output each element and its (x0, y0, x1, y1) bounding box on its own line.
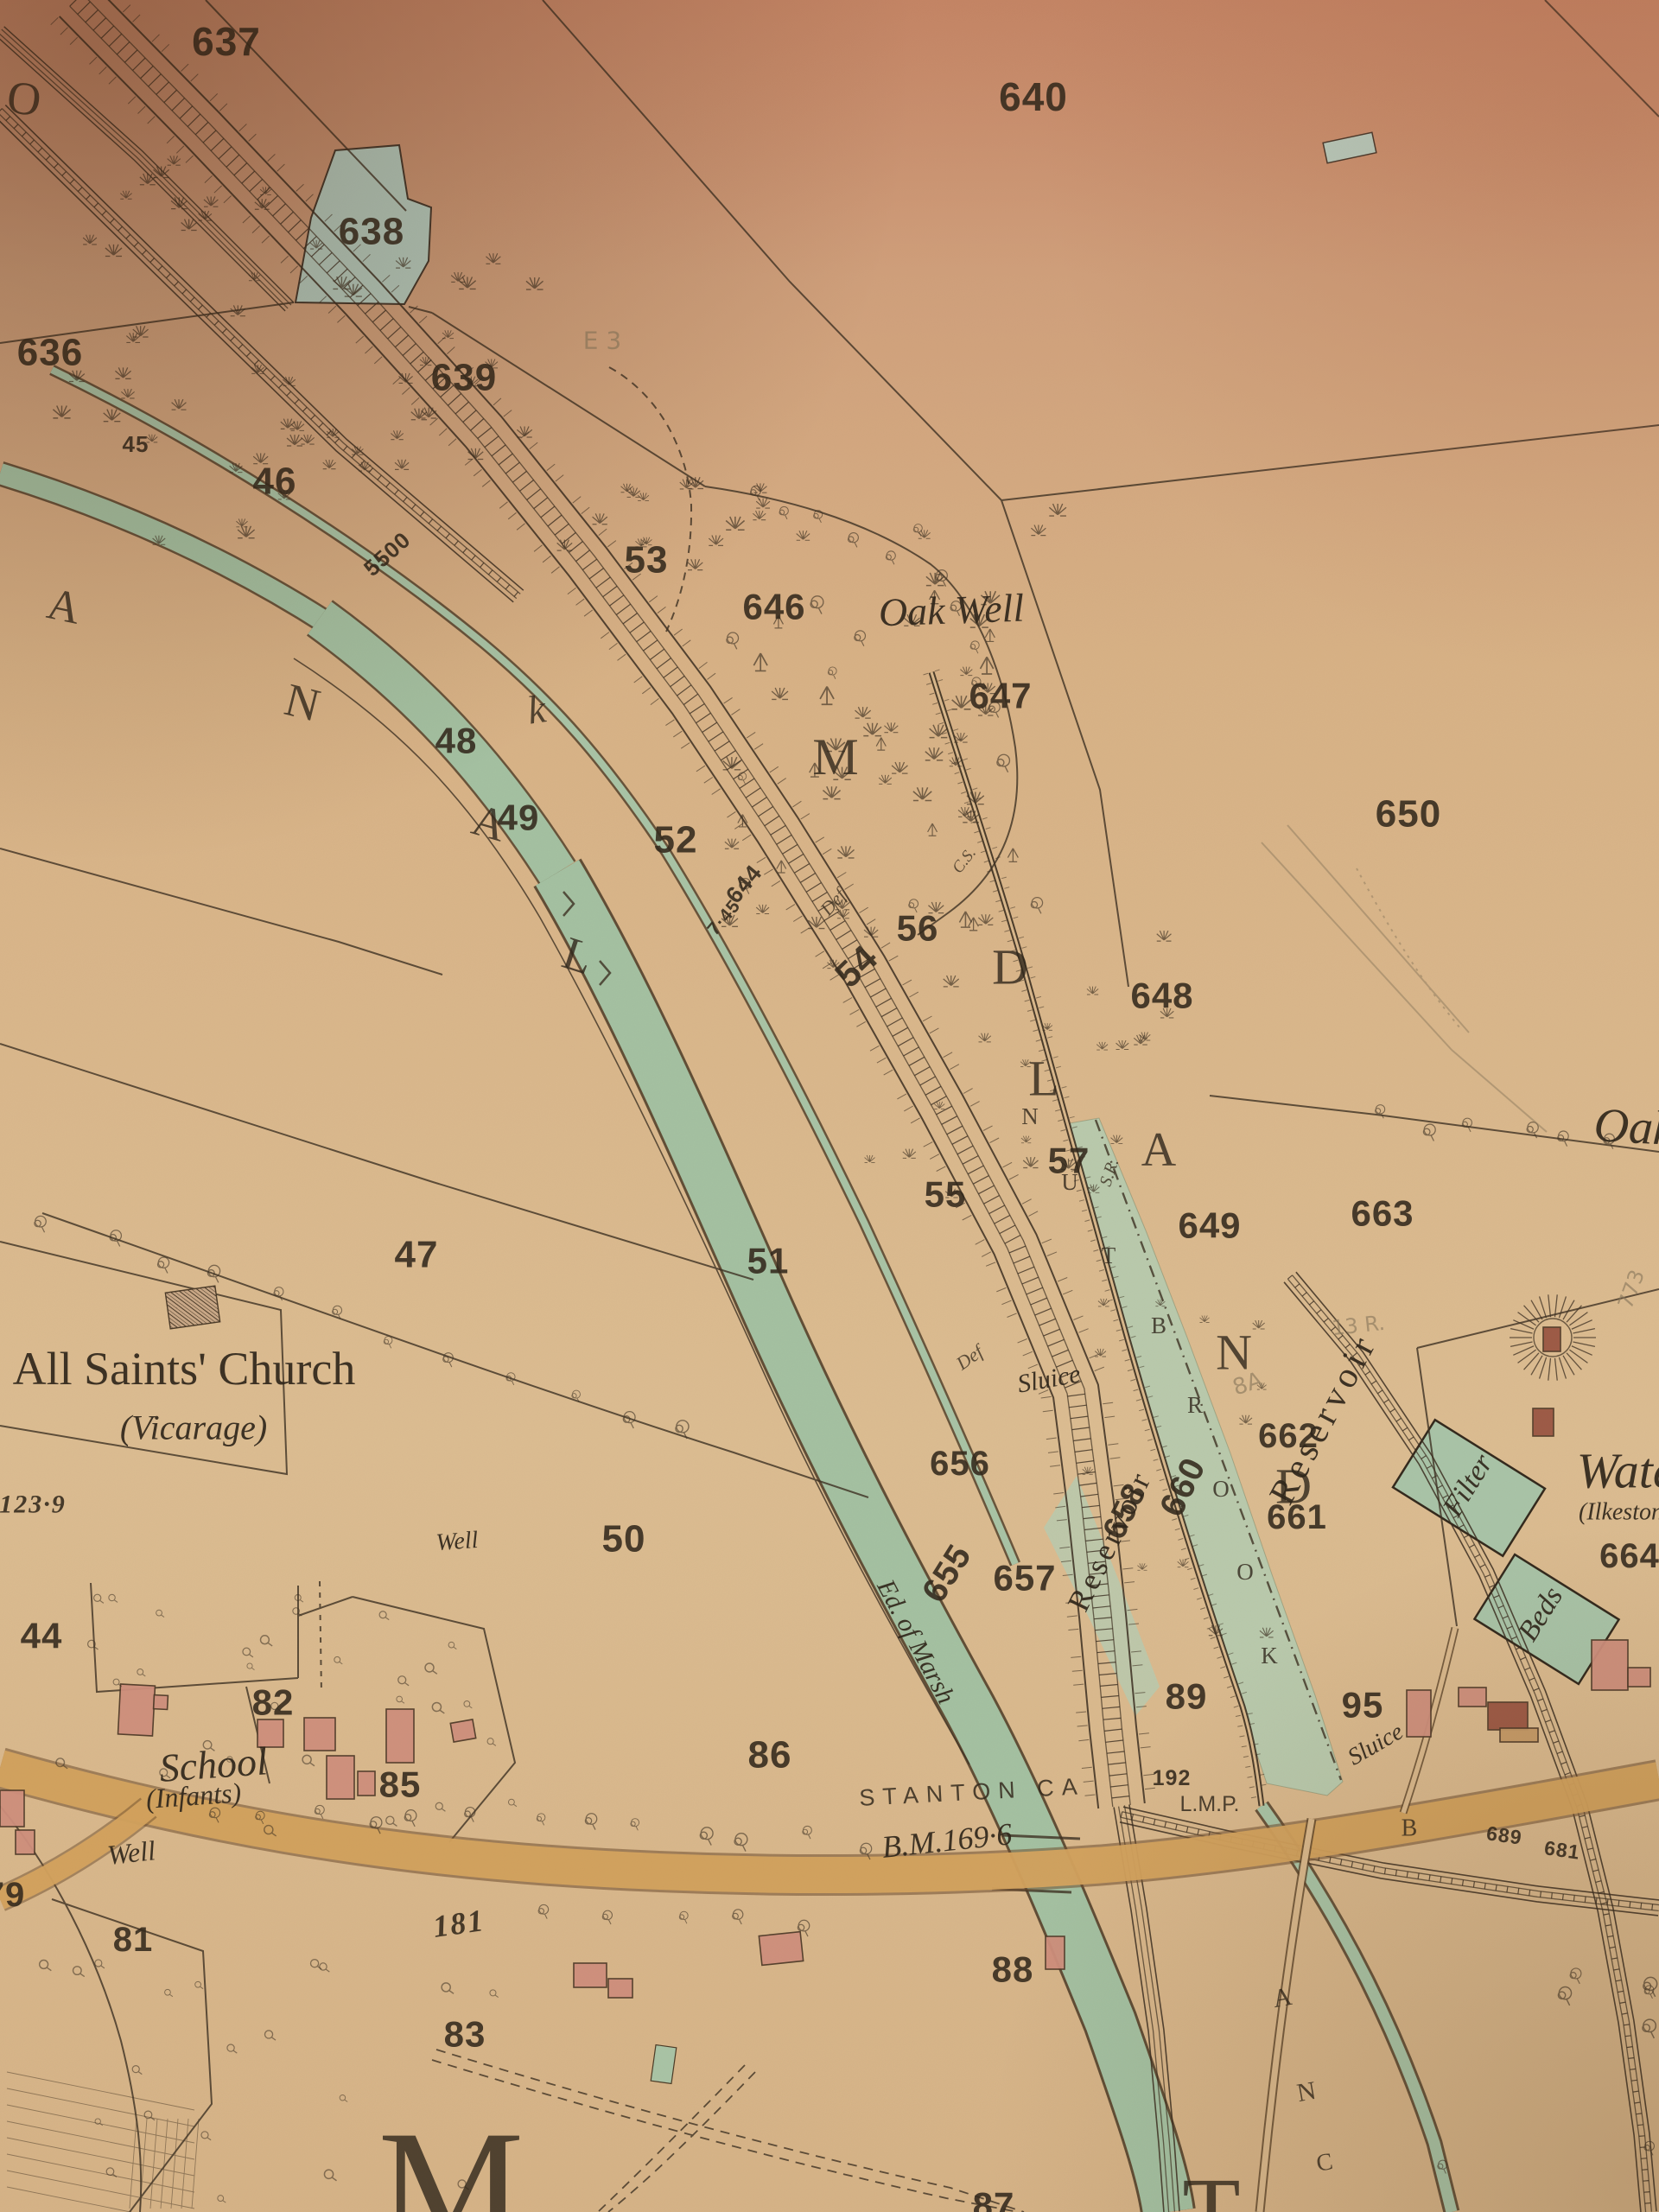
big-k: K (1261, 1643, 1278, 1669)
parcel-47: 47 (395, 1234, 439, 1276)
name-water: Water (1577, 1443, 1659, 1499)
big-b: B (1151, 1313, 1166, 1338)
big-o: O (1212, 1476, 1230, 1502)
building (358, 1771, 375, 1796)
parcel-650: 650 (1376, 793, 1441, 836)
big-u: U (1061, 1169, 1078, 1195)
big-b: B (1402, 1815, 1418, 1842)
parcel-663: 663 (1351, 1193, 1414, 1234)
name-l-m-p: L.M.P. (1179, 1792, 1239, 1816)
parcel-50: 50 (602, 1518, 646, 1560)
parcel-79: 79 (0, 1876, 25, 1914)
parcel-83: 83 (444, 2014, 486, 2055)
parcel-648: 648 (1130, 976, 1193, 1016)
parcel-46: 46 (253, 461, 297, 503)
parcel-646: 646 (742, 587, 805, 627)
big-t: T (1102, 1243, 1116, 1268)
big-t: T (1182, 2158, 1240, 2212)
parcel-48: 48 (435, 721, 478, 761)
name-well: Well (435, 1527, 480, 1556)
name-vicarage: (Vicarage) (120, 1408, 267, 1447)
parcel-664: 664 (1599, 1537, 1659, 1575)
parcel-82: 82 (252, 1682, 295, 1723)
parcel-640: 640 (999, 74, 1068, 119)
big-l: L (1028, 1051, 1058, 1107)
os-map-photo: 6376406386366394546536466476504849525654… (0, 0, 1659, 2212)
building (1543, 1327, 1560, 1351)
parcel-56: 56 (897, 908, 939, 949)
building (386, 1709, 414, 1763)
building (450, 1719, 475, 1742)
parcel-636: 636 (17, 332, 83, 374)
glasshouse (165, 1286, 219, 1329)
parcel-89: 89 (1166, 1676, 1208, 1717)
building (1500, 1728, 1538, 1742)
name-well: Well (105, 1834, 156, 1871)
parcel-44: 44 (21, 1616, 63, 1656)
big-a: A (1141, 1123, 1177, 1177)
parcel-192: 192 (1153, 1766, 1192, 1790)
big-m: M (378, 2098, 524, 2212)
name-ilkeston: (Ilkeston (1579, 1499, 1659, 1526)
big-d: D (1275, 1459, 1312, 1515)
parcel-639: 639 (431, 357, 497, 399)
parcel-86: 86 (748, 1734, 792, 1777)
big-o: O (4, 71, 45, 127)
big-r: R (1187, 1392, 1203, 1418)
parcel-656: 656 (930, 1445, 990, 1483)
building (1459, 1688, 1486, 1707)
parcel-81: 81 (113, 1921, 154, 1959)
big-o: O (1236, 1559, 1254, 1585)
building (1533, 1408, 1554, 1436)
building (154, 1695, 168, 1710)
building (1592, 1640, 1628, 1690)
building (759, 1932, 803, 1966)
parcel-87: 87 (973, 2185, 1015, 2212)
parcel-88: 88 (992, 1949, 1034, 1990)
building (574, 1963, 607, 1987)
building (1407, 1690, 1431, 1737)
building (118, 1684, 156, 1736)
parcel-638: 638 (339, 211, 404, 253)
parcel-637: 637 (192, 19, 261, 64)
building (327, 1756, 354, 1799)
building (1046, 1936, 1065, 1969)
parcel-53: 53 (625, 539, 669, 582)
building (304, 1718, 335, 1751)
building (16, 1830, 35, 1854)
parcel-85: 85 (379, 1764, 422, 1805)
parcel-181: 181 (431, 1903, 487, 1944)
parcel-55: 55 (925, 1174, 967, 1215)
name-infants: (Infants) (145, 1777, 242, 1815)
parcel-647: 647 (969, 676, 1032, 716)
parcel-657: 657 (993, 1558, 1056, 1599)
parcel-51: 51 (747, 1241, 790, 1281)
parcel-649: 649 (1178, 1205, 1241, 1246)
big-n: N (1021, 1103, 1039, 1129)
building (608, 1979, 632, 1998)
name-oakwell: Oakwell (1592, 1098, 1659, 1160)
parcel-45: 45 (123, 431, 149, 457)
pencil-e-3: E 3 (583, 327, 621, 355)
name-oak-well: Oak Well (878, 586, 1025, 635)
parcel-95: 95 (1342, 1685, 1384, 1726)
building (1488, 1702, 1528, 1730)
big-d: D (992, 939, 1028, 995)
building (0, 1790, 24, 1827)
big-m: M (812, 728, 858, 785)
building (1628, 1668, 1650, 1687)
parcel-123-9: 123·9 (0, 1491, 67, 1519)
parcel-52: 52 (654, 819, 698, 861)
name-all-saints-church: All Saints' Church (13, 1343, 356, 1395)
